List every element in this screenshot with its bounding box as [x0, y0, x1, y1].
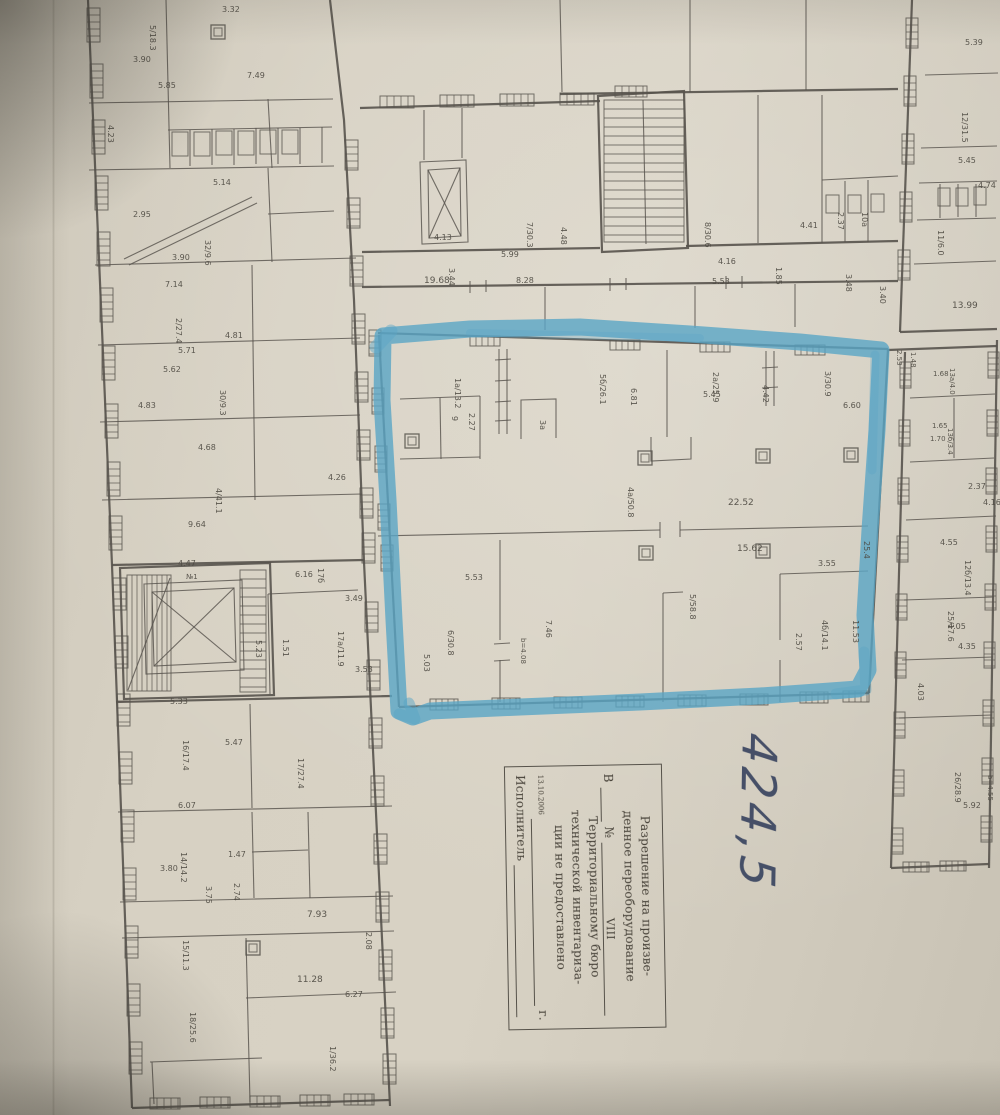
- window-hatch-block: [344, 1094, 374, 1105]
- plan-label: 5.45: [703, 390, 721, 399]
- wall-thick: [560, 89, 898, 94]
- fixture-box: [260, 130, 276, 154]
- plan-label: 1.85: [774, 267, 783, 285]
- plan-label: b=4.08: [519, 638, 527, 664]
- wall-thick: [362, 248, 600, 252]
- plan-label: 17б: [316, 568, 325, 583]
- plan-label: 4.41: [800, 221, 818, 230]
- plan-label: 4.03: [916, 683, 925, 701]
- plan-label: 15.62: [737, 544, 763, 554]
- window-hatch-block: [374, 834, 387, 864]
- window-hatch-block: [379, 950, 392, 980]
- plan-label: 9.64: [188, 520, 206, 529]
- plan-label: 11.28: [297, 975, 323, 985]
- stamp-prefix: В: [600, 773, 617, 782]
- plan-label: 4.05: [948, 622, 966, 631]
- plan-label: 5.53: [465, 573, 483, 582]
- window-hatch-block: [300, 1095, 330, 1106]
- wall-line: [95, 258, 356, 265]
- plan-label: 1/36.2: [328, 1046, 337, 1072]
- column-symbol-inner: [249, 944, 257, 952]
- plan-label: 11.53: [851, 620, 860, 643]
- plan-label: 1.65: [932, 422, 948, 430]
- wall-line: [122, 931, 394, 938]
- plan-label: 32/9.6: [203, 240, 212, 266]
- column-symbol: [639, 546, 653, 560]
- plan-label: 6.81: [629, 388, 638, 406]
- window-hatch-block: [899, 420, 910, 446]
- plan-label: 19.68: [424, 276, 450, 286]
- wall-line: [762, 367, 778, 368]
- plan-label: 4.42: [761, 385, 770, 403]
- window-hatch-block: [898, 478, 909, 504]
- stamp-no-sign: №: [601, 826, 618, 838]
- wall-line: [118, 806, 392, 812]
- column-symbol-inner: [642, 549, 650, 557]
- wall-thick: [120, 563, 274, 699]
- wall-line: [100, 415, 360, 422]
- plan-label: 14/14.2: [179, 852, 188, 883]
- plan-label: 5.39: [965, 38, 983, 47]
- plan-label: 13.99: [952, 301, 978, 311]
- plan-label: 5.92: [963, 801, 981, 810]
- stamp-date-suffix: г.: [535, 1010, 552, 1021]
- wall-line: [917, 218, 996, 220]
- wall-line: [124, 197, 252, 259]
- plan-label: 3.53: [355, 665, 373, 674]
- plan-label: 4.74: [978, 181, 996, 190]
- floorplan-photo: 5/18.33.323.907.495.854.235.142.9532/9.6…: [0, 0, 1000, 1115]
- wall-line: [89, 99, 333, 103]
- stamp-executor-label: Исполнитель: [512, 775, 530, 861]
- wall-line: [120, 896, 393, 902]
- plan-label: 10а: [860, 212, 869, 227]
- plan-label: 6/30.8: [446, 630, 455, 656]
- plan-label: 5.71: [178, 346, 196, 355]
- highlight-overlap: [470, 333, 700, 338]
- plan-label: 9: [450, 416, 459, 421]
- plan-label: 2.57: [794, 633, 803, 651]
- wall-line: [494, 660, 510, 661]
- plan-label: 4.68: [198, 443, 216, 452]
- wall-line: [268, 168, 272, 262]
- plan-label: 5/58.8: [688, 594, 697, 620]
- column-symbol: [211, 25, 225, 39]
- wall-line: [495, 380, 511, 381]
- wall-thick: [686, 241, 898, 246]
- plan-label: 1.70: [930, 435, 946, 443]
- plan-label: 3.80: [160, 864, 178, 873]
- plan-label: 18/25.6: [188, 1012, 197, 1043]
- column-symbol-inner: [408, 437, 416, 445]
- column-symbol-inner: [214, 28, 222, 36]
- plan-label: 7/30.3: [525, 222, 534, 248]
- column-symbol: [844, 448, 858, 462]
- plan-label: 7.93: [307, 910, 327, 920]
- plan-label: 7.49: [247, 71, 265, 80]
- plan-label: 5.03: [422, 654, 431, 672]
- plan-label: 30/9.3: [218, 390, 227, 416]
- fixture-box: [848, 195, 861, 213]
- stamp-date-row: 13.10.2006 г.: [530, 775, 551, 1021]
- wall-line: [921, 146, 997, 148]
- plan-label: 3.48: [844, 274, 853, 292]
- fixture-box: [172, 132, 188, 156]
- plan-label: 3.75: [204, 886, 213, 904]
- window-hatch-block: [371, 776, 384, 806]
- plan-label: 2.53: [895, 350, 903, 366]
- plan-label: 4/41.1: [214, 488, 223, 514]
- plan-label: 1.68: [933, 370, 949, 378]
- wall-line: [680, 526, 868, 530]
- plan-label: 4.48: [559, 227, 568, 245]
- plan-label: 3а: [538, 420, 547, 430]
- plan-label: 7.14: [165, 280, 183, 289]
- wall-line: [495, 420, 511, 421]
- plan-label: 1.48: [909, 352, 917, 368]
- plan-label: 5.14: [213, 178, 231, 187]
- wall-line: [400, 457, 480, 459]
- plan-label: 11/6.0: [936, 230, 945, 256]
- plan-label: 1а/13.2: [453, 378, 462, 409]
- plan-label: 3.49: [345, 594, 363, 603]
- wall-line: [429, 168, 460, 238]
- plan-label: 4.81: [225, 331, 243, 340]
- wall-line: [899, 715, 992, 718]
- stamp-number-row: В № VIII: [600, 773, 621, 1019]
- approval-stamp: Разрешение на произве- денное переоборуд…: [504, 764, 667, 1031]
- column-symbol: [756, 449, 770, 463]
- wall-line: [308, 812, 310, 898]
- plan-label: 2.08: [364, 932, 373, 950]
- plan-label: 4а/50.8: [626, 487, 635, 518]
- plan-label: 3.40: [878, 286, 887, 304]
- stamp-executor-row: Исполнитель: [512, 775, 533, 1021]
- column-symbol: [246, 941, 260, 955]
- plan-label: 3.90: [172, 253, 190, 262]
- plan-label: 5.62: [163, 365, 181, 374]
- plan-label: 3.32: [222, 5, 240, 14]
- plan-label: b=4.55: [986, 775, 994, 801]
- plan-label: 2.95: [133, 210, 151, 219]
- plan-label: 1.51: [281, 639, 290, 657]
- wall-line: [904, 597, 994, 600]
- plan-label: 2/27.4: [174, 318, 183, 344]
- stamp-date: 13.10.2006: [534, 775, 544, 815]
- fixture-box: [282, 130, 298, 154]
- column-symbol-inner: [847, 451, 855, 459]
- wall-line: [246, 938, 250, 1102]
- wall-line: [150, 1058, 262, 1062]
- plan-label: №1: [186, 573, 198, 581]
- plan-label: 6.16: [295, 570, 313, 579]
- plan-label: 4.13: [434, 233, 452, 242]
- plan-label: 5.23: [254, 640, 263, 658]
- fixture-box: [238, 131, 254, 155]
- wall-line: [268, 211, 334, 214]
- wall-thick: [888, 346, 997, 350]
- plan-label: 4.35: [958, 642, 976, 651]
- plan-label: 5/18.3: [148, 25, 157, 51]
- plan-label: 16/17.4: [181, 740, 190, 771]
- plan-label: 4.16: [983, 498, 1000, 507]
- plan-label: 13а/4.0: [948, 368, 956, 395]
- floor-plan-svg: 5/18.33.323.907.495.854.235.142.9532/9.6…: [0, 0, 1000, 1115]
- wall-line: [822, 176, 898, 180]
- plan-label: 17/27.4: [296, 758, 305, 789]
- plan-label: 17а/11.9: [336, 631, 345, 667]
- wall-line: [440, 398, 441, 459]
- wall-line: [168, 127, 332, 130]
- plan-label: 2.37: [968, 482, 986, 491]
- column-symbol-inner: [641, 454, 649, 462]
- wall-line: [268, 594, 270, 694]
- column-symbol-inner: [759, 452, 767, 460]
- stamp-executor-blank: [513, 865, 517, 1017]
- plan-label: 4б/14.1: [820, 620, 829, 651]
- plan-label: 5.85: [158, 81, 176, 90]
- handwritten-area-note: 424,5: [728, 730, 787, 894]
- plan-label: 12/31.5: [960, 112, 969, 143]
- plan-label: 25.4: [862, 541, 871, 559]
- plan-label: 7.46: [544, 620, 553, 638]
- plan-label: 4.55: [940, 538, 958, 547]
- window-hatch-block: [892, 828, 903, 854]
- plan-label: 2.27: [467, 413, 476, 431]
- wall-line: [102, 494, 362, 500]
- wall-line: [780, 571, 868, 574]
- plan-label: 4.83: [138, 401, 156, 410]
- wall-thick: [900, 329, 997, 332]
- plan-label: 5.33: [170, 697, 188, 706]
- plan-label: 4.26: [328, 473, 346, 482]
- wall-line: [495, 359, 511, 360]
- plan-label: 22.52: [728, 498, 754, 508]
- plan-label: 2.37: [836, 212, 845, 230]
- plan-label: 3.90: [133, 55, 151, 64]
- plan-label: 12б/13.4: [963, 560, 972, 596]
- stamp-number-value: VIII: [601, 842, 618, 1016]
- wall-line: [252, 850, 308, 852]
- plan-label: 5.99: [501, 250, 519, 259]
- plan-label: 5.47: [225, 738, 243, 747]
- wall-line: [252, 812, 254, 898]
- wall-line: [268, 99, 272, 168]
- plan-label: 8.28: [516, 276, 534, 285]
- wall-line: [651, 437, 691, 461]
- plan-label: 4.23: [106, 125, 115, 143]
- wall-line: [250, 704, 252, 808]
- fixture-box: [194, 132, 210, 156]
- window-hatch-block: [900, 192, 912, 222]
- fixture-box: [826, 195, 839, 213]
- wall-line: [902, 657, 993, 660]
- window-hatch-block: [250, 1096, 280, 1107]
- plan-label: 15/11.3: [181, 940, 190, 971]
- plan-label: 5.45: [958, 156, 976, 165]
- wall-line: [495, 401, 511, 402]
- wall-line: [663, 592, 683, 593]
- wall-line: [154, 588, 234, 666]
- plan-label: 6.07: [178, 801, 196, 810]
- wall-line: [560, 0, 562, 92]
- column-symbol: [638, 451, 652, 465]
- window-hatch-block: [986, 526, 997, 552]
- window-hatch-block: [898, 250, 910, 280]
- wall-line: [378, 530, 660, 536]
- plan-label: 6.27: [345, 990, 363, 999]
- fixture-box: [216, 131, 232, 155]
- plan-label: 26/28.9: [953, 772, 962, 803]
- wall-line: [914, 261, 996, 264]
- plan-label: 8/30.6: [703, 222, 712, 248]
- wall-line: [521, 399, 556, 439]
- fixture-box: [871, 194, 884, 212]
- wall-line: [246, 992, 396, 998]
- plan-label: 4.47: [178, 559, 196, 568]
- plan-label: 6.60: [843, 401, 861, 410]
- plan-label: 13б/3.4: [946, 428, 954, 455]
- plan-label: 1.47: [228, 850, 246, 859]
- plan-label: 2.74: [232, 883, 241, 901]
- wall-line: [910, 458, 994, 462]
- wall-line: [906, 516, 996, 520]
- plan-label: 3/30.9: [823, 371, 832, 397]
- wall-line: [252, 265, 255, 500]
- column-symbol: [405, 434, 419, 448]
- plan-label: 3.55: [818, 559, 836, 568]
- highlight-overlap: [872, 355, 875, 470]
- plan-label: 5.53: [712, 277, 730, 286]
- wall-thick: [900, 0, 912, 332]
- plan-label: 4.16: [718, 257, 736, 266]
- wall-line: [494, 643, 510, 644]
- wall-line: [925, 73, 998, 75]
- wall-line: [89, 166, 334, 170]
- plan-label: 5б/26.1: [598, 374, 607, 405]
